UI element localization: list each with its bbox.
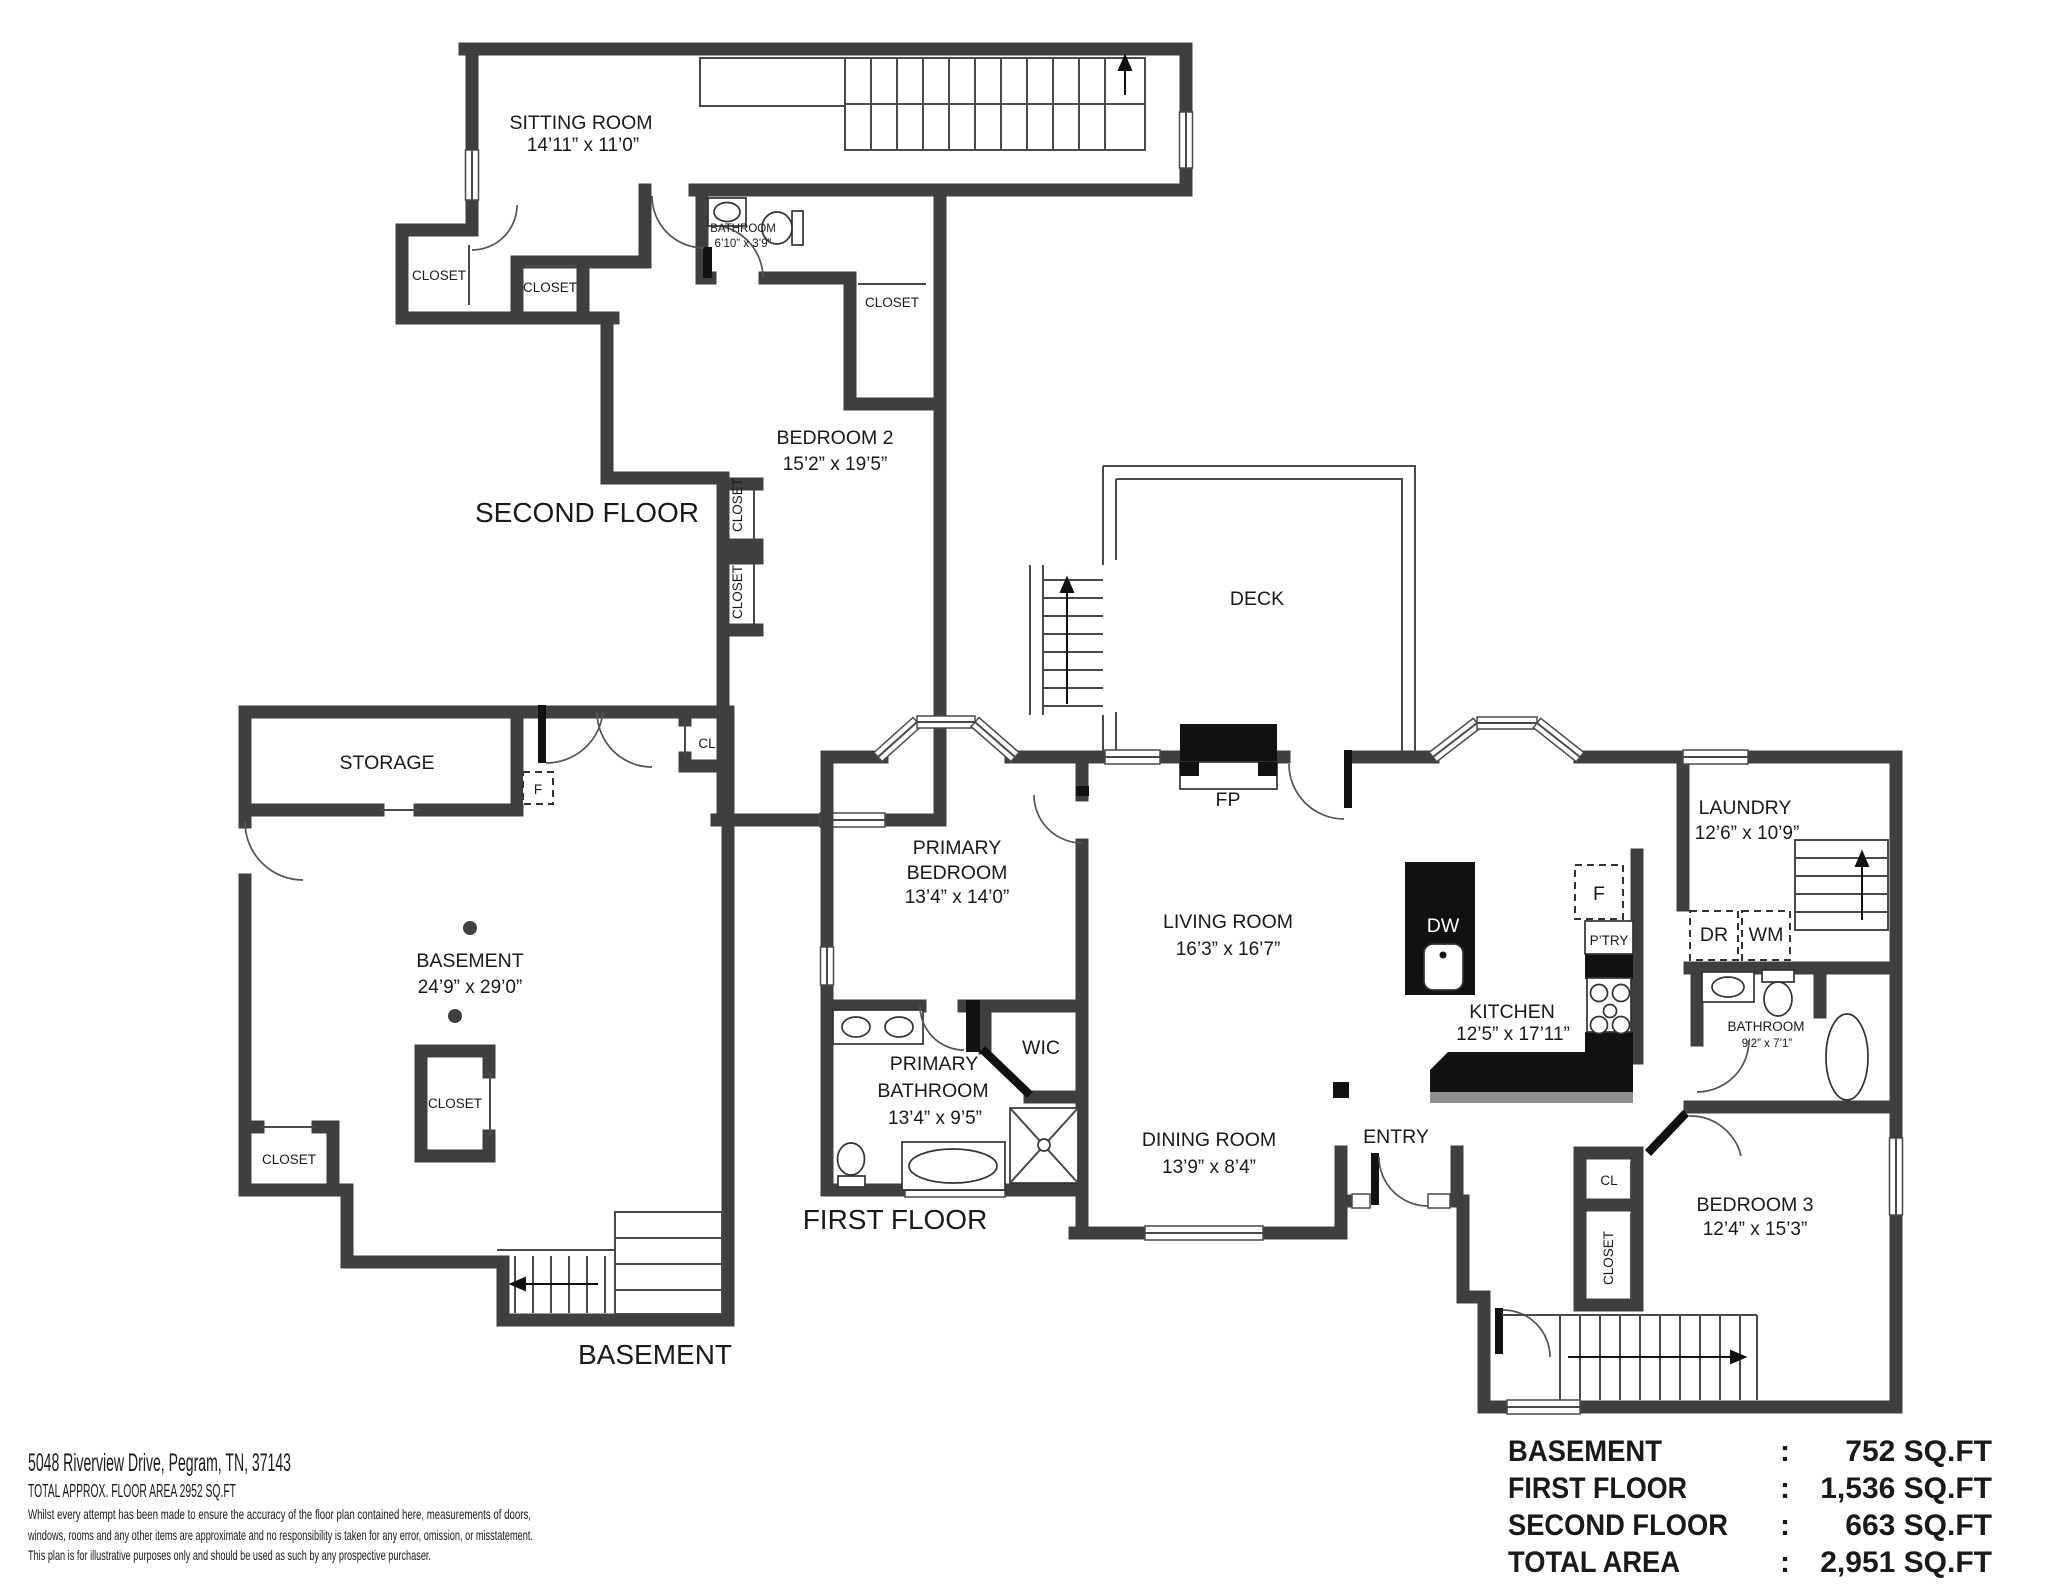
basement-title: BASEMENT [578, 1339, 732, 1370]
door-jamb [966, 1000, 980, 1052]
room-label-primary-bedroom: PRIMARY [913, 837, 1002, 859]
stove-burner [1591, 1017, 1608, 1034]
door-jamb [1495, 1308, 1503, 1354]
second-floor-title: SECOND FLOOR [475, 497, 699, 528]
table-row-label: TOTAL AREA [1508, 1546, 1680, 1579]
bedroom3-door-leaf [1645, 1110, 1689, 1156]
kitchen-counter-shadow [1430, 1092, 1633, 1103]
door-jamb [1344, 750, 1352, 808]
room-dims-primary-bathroom: 13’4” x 9’5” [888, 1108, 982, 1129]
room-dims-dining-room: 13’9” x 8’4” [1162, 1157, 1256, 1178]
room-label-wic: WIC [1022, 1037, 1060, 1059]
first-floor-bathroom-fixtures [1702, 970, 1868, 1100]
closet-label-cl: CL [698, 736, 716, 751]
structural-post [1333, 1082, 1349, 1098]
stove-burner [1591, 985, 1608, 1002]
room-dims-bedroom3: 12’4” x 15’3” [1703, 1219, 1808, 1240]
basement-staircase [497, 1212, 722, 1314]
fireplace-label: FP [1216, 789, 1241, 811]
stair-outline [845, 58, 1145, 150]
disclaimer-line: windows, rooms and any other items are a… [27, 1527, 533, 1543]
room-label-basement: BASEMENT [416, 950, 523, 972]
total-area-line: TOTAL APPROX. FLOOR AREA 2952 SQ.FT [28, 1481, 236, 1501]
deck: DECK [1030, 466, 1415, 757]
second-floor-staircase [700, 56, 1145, 150]
basement-plan: STORAGE F CL BASEMENT 24’9” x 29’0” CLOS… [245, 705, 732, 1370]
support-column [448, 1009, 462, 1023]
entry-door-leaf [1371, 1153, 1379, 1205]
room-label-sitting-room: SITTING ROOM [510, 112, 653, 134]
room-dims-sitting-room: 14’11” x 11’0” [527, 135, 639, 156]
door-jamb [538, 705, 546, 763]
island-sink-icon [1424, 944, 1463, 990]
address-line: 5048 Riverview Drive, Pegram, TN, 37143 [28, 1449, 291, 1477]
toilet-tank [792, 211, 803, 245]
room-label-primary-bathroom2: BATHROOM [877, 1080, 988, 1102]
fridge-label: F [534, 782, 542, 797]
stairs-left-arrow [511, 1278, 598, 1290]
room-dims-kitchen: 12’5” x 17’11” [1456, 1024, 1570, 1045]
footer: 5048 Riverview Drive, Pegram, TN, 37143 … [27, 1449, 533, 1563]
room-dims-living-room: 16’3” x 16’7” [1176, 939, 1281, 960]
sink-icon [1712, 977, 1744, 997]
laundry-staircase [1795, 840, 1888, 930]
closet-label: CLOSET [262, 1152, 316, 1167]
stove-burner [1604, 1005, 1617, 1018]
laundry-appliances: DR WM [1690, 911, 1790, 960]
stair-treads [497, 1212, 722, 1314]
room-dims-bedroom2: 15’2” x 19’5” [783, 454, 888, 475]
window-sidelight [1352, 1194, 1370, 1208]
pantry-label: P’TRY [1590, 933, 1629, 948]
table-row-value: 752 SQ.FT [1845, 1435, 1992, 1468]
door-jamb [1076, 786, 1089, 796]
closet-label-vertical: CLOSET [730, 565, 745, 619]
basement-walls [245, 712, 728, 1320]
stair-treads [1795, 840, 1888, 930]
deck-stairs-up-arrow [1061, 578, 1073, 704]
toilet-icon [1764, 982, 1792, 1016]
table-row-value: 2,951 SQ.FT [1820, 1546, 1992, 1579]
stairs-up-arrow [1856, 852, 1868, 920]
room-label-bedroom2: BEDROOM 2 [776, 427, 893, 449]
sink-icon [885, 1017, 913, 1037]
toilet-tank [838, 1176, 865, 1187]
table-row-sep: : [1780, 1435, 1790, 1468]
room-label-bedroom3: BEDROOM 3 [1696, 1194, 1813, 1216]
room-dims-basement: 24’9” x 29’0” [418, 977, 523, 998]
kitchen-counter [1585, 952, 1633, 979]
room-label-kitchen: KITCHEN [1469, 1001, 1555, 1023]
disclaimer-line: This plan is for illustrative purposes o… [28, 1547, 431, 1563]
sink-icon [714, 203, 740, 222]
kitchen-fixtures: DW P’TRY F [1405, 862, 1633, 1103]
washer-label: WM [1749, 924, 1784, 946]
room-label-living-room: LIVING ROOM [1163, 911, 1293, 933]
closet-label: CLOSET [865, 295, 919, 310]
room-dims-primary-bedroom: 13’4” x 14’0” [905, 887, 1010, 908]
fireplace-icon [1180, 724, 1277, 763]
table-row-sep: : [1780, 1472, 1790, 1505]
room-dims-bathroom1f: 9’2” x 7’1” [1742, 1038, 1793, 1050]
sink-icon [842, 1017, 870, 1037]
room-label-primary-bathroom: PRIMARY [890, 1053, 979, 1075]
island-sink-drain [1440, 952, 1447, 959]
area-table: BASEMENT : 752 SQ.FT FIRST FLOOR : 1,536… [1508, 1435, 1992, 1579]
fireplace: FP [1180, 724, 1277, 811]
door-jamb [703, 247, 712, 278]
closet-label: CLOSET [428, 1096, 482, 1111]
fridge-label: F [1593, 883, 1605, 905]
table-row-sep: : [1780, 1509, 1790, 1542]
table-row-value: 663 SQ.FT [1845, 1509, 1992, 1542]
stove-burner [1613, 985, 1630, 1002]
closet-label: CLOSET [412, 268, 466, 283]
stair-landing [700, 58, 845, 106]
door-arcs [245, 712, 652, 880]
table-row-label: BASEMENT [1508, 1435, 1662, 1468]
stove-burner [1613, 1017, 1630, 1034]
fireplace-notch [1258, 762, 1277, 776]
room-dims-laundry: 12’6” x 10’9” [1695, 823, 1800, 844]
bathtub-basin [909, 1149, 997, 1183]
first-floor-plan: DECK FP [803, 466, 1903, 1414]
toilet-icon [838, 1143, 865, 1175]
disclaimer-line: Whilst every attempt has been made to en… [28, 1506, 531, 1522]
table-row-sep: : [1780, 1546, 1790, 1579]
closet-label-cl: CL [1600, 1173, 1618, 1188]
toilet-tank [1762, 970, 1794, 982]
room-label-laundry: LAUNDRY [1699, 797, 1792, 819]
table-row-label: FIRST FLOOR [1508, 1472, 1687, 1505]
first-floor-windows [821, 716, 1903, 1414]
room-label-storage: STORAGE [340, 752, 435, 774]
closet-label: CLOSET [523, 280, 577, 295]
window-sidelight [1428, 1194, 1450, 1208]
room-label-bathroom2f: BATHROOM [710, 223, 776, 235]
room-label-primary-bedroom2: BEDROOM [907, 862, 1008, 884]
floor-plan-page: SITTING ROOM 14’11” x 11’0” BATHROOM 6’1… [0, 0, 2048, 1591]
shower-drain [1038, 1139, 1050, 1151]
first-floor-title: FIRST FLOOR [803, 1204, 988, 1235]
deck-railing [1103, 466, 1415, 757]
basement-doors [245, 705, 652, 880]
stairs-right-arrow [1568, 1351, 1745, 1363]
dryer-label: DR [1700, 924, 1728, 946]
room-label-entry: ENTRY [1363, 1126, 1429, 1148]
room-label-deck: DECK [1230, 588, 1284, 610]
closet-label-vertical: CLOSET [1601, 1231, 1616, 1285]
dishwasher-label: DW [1427, 915, 1460, 937]
support-column [463, 921, 477, 935]
room-label-dining-room: DINING ROOM [1142, 1129, 1276, 1151]
table-row-label: SECOND FLOOR [1508, 1509, 1728, 1542]
room-label-bathroom1f: BATHROOM [1728, 1019, 1805, 1034]
room-dims-bathroom2f: 6’10” x 3’9” [715, 238, 772, 250]
bathtub-icon [1826, 1014, 1868, 1100]
table-row-value: 1,536 SQ.FT [1820, 1472, 1992, 1505]
stairs-up-arrow [1119, 56, 1131, 95]
fireplace-notch [1180, 762, 1199, 776]
closet-label-vertical: CLOSET [730, 478, 745, 532]
